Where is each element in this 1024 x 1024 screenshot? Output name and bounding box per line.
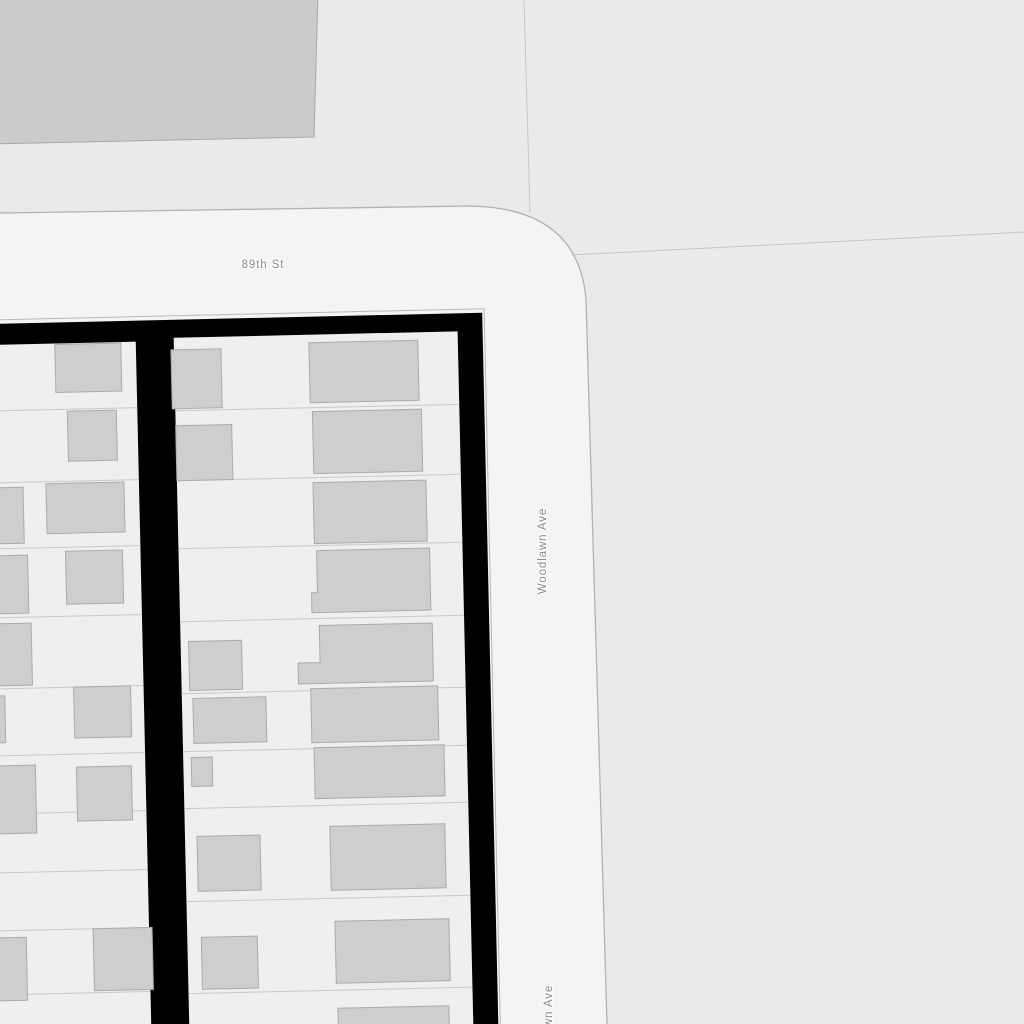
large-building-footprint [0, 0, 318, 144]
map-canvas[interactable]: 89th St Woodlawn Ave Woodlawn Ave [0, 0, 1024, 1024]
city-block [0, 309, 501, 1024]
street-label-woodlawn-ave: Woodlawn Ave [537, 508, 549, 594]
street-label-woodlawn-ave-partial: Woodlawn Ave [543, 985, 555, 1024]
street-label-89th-st: 89th St [242, 259, 285, 271]
map-layers [0, 0, 1024, 1024]
